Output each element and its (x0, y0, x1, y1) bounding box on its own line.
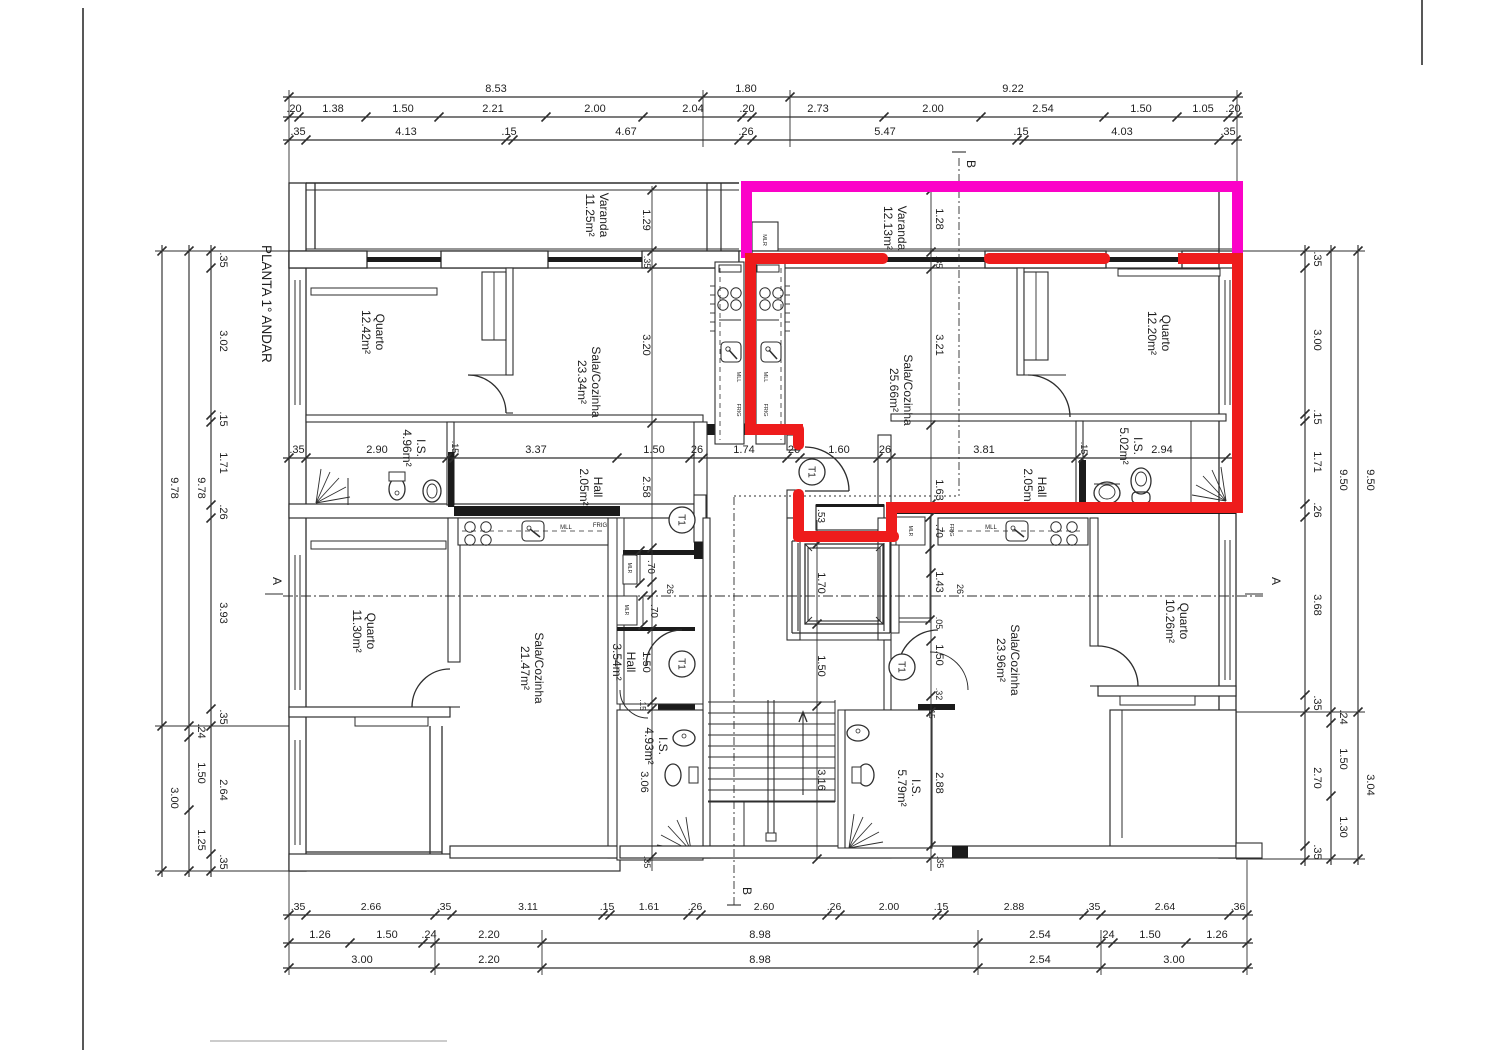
svg-text:1.50: 1.50 (933, 644, 945, 665)
svg-text:2.00: 2.00 (879, 901, 900, 913)
svg-text:1.26: 1.26 (309, 929, 330, 941)
svg-text:.26: .26 (827, 901, 842, 913)
svg-text:2.70: 2.70 (1311, 767, 1323, 788)
svg-text:.35: .35 (934, 256, 944, 269)
svg-text:.35: .35 (291, 901, 306, 913)
svg-text:5.79m²: 5.79m² (895, 769, 909, 806)
svg-text:.35: .35 (1220, 126, 1235, 138)
svg-text:.35: .35 (217, 252, 229, 267)
svg-text:.15: .15 (1311, 409, 1323, 424)
svg-text:.70: .70 (645, 560, 656, 574)
svg-text:1.25: 1.25 (195, 829, 207, 850)
svg-text:Quarto: Quarto (364, 613, 378, 650)
svg-text:Quarto: Quarto (373, 314, 387, 351)
svg-text:A: A (270, 577, 284, 585)
svg-text:Sala/Cozinha: Sala/Cozinha (901, 354, 915, 426)
svg-text:Hall: Hall (1035, 477, 1049, 498)
svg-text:1.50: 1.50 (643, 444, 664, 456)
svg-text:I.S.: I.S. (1131, 437, 1145, 455)
svg-text:3.04: 3.04 (1364, 774, 1376, 795)
svg-text:9.78: 9.78 (168, 477, 180, 498)
svg-text:9.78: 9.78 (195, 477, 207, 498)
svg-text:2.05m²: 2.05m² (1021, 468, 1035, 505)
svg-text:B: B (964, 160, 978, 168)
svg-text:8.98: 8.98 (749, 929, 770, 941)
svg-text:23.34m²: 23.34m² (575, 360, 589, 404)
svg-text:1.28: 1.28 (933, 208, 945, 229)
svg-text:.35: .35 (642, 856, 652, 869)
svg-text:I.S.: I.S. (909, 779, 923, 797)
svg-text:MLL: MLL (762, 372, 768, 383)
svg-text:.35: .35 (217, 709, 229, 724)
svg-text:.24: .24 (1099, 929, 1114, 941)
svg-text:.35: .35 (1086, 901, 1101, 913)
svg-text:3.02: 3.02 (217, 330, 229, 351)
svg-text:2.00: 2.00 (584, 103, 605, 115)
svg-text:.26: .26 (217, 504, 229, 519)
svg-text:T1: T1 (676, 658, 687, 670)
svg-text:26: 26 (879, 444, 891, 456)
svg-text:.20: .20 (739, 103, 754, 115)
svg-text:4.03: 4.03 (1111, 126, 1132, 138)
svg-text:5.47: 5.47 (874, 126, 895, 138)
svg-text:12.20m²: 12.20m² (1145, 311, 1159, 355)
svg-text:MLR: MLR (907, 526, 913, 537)
svg-text:2.00: 2.00 (922, 103, 943, 115)
svg-text:4.96m²: 4.96m² (400, 429, 414, 466)
svg-text:T1: T1 (676, 514, 687, 526)
svg-text:.24: .24 (421, 929, 436, 941)
svg-text:3.93: 3.93 (217, 602, 229, 623)
svg-text:4.67: 4.67 (615, 126, 636, 138)
svg-text:12.13m²: 12.13m² (881, 206, 895, 250)
svg-text:1.05: 1.05 (1192, 103, 1213, 115)
svg-text:Sala/Cozinha: Sala/Cozinha (1008, 624, 1022, 696)
svg-text:2.64: 2.64 (1155, 901, 1176, 913)
svg-text:21.47m²: 21.47m² (518, 646, 532, 690)
svg-text:1.30: 1.30 (1337, 816, 1349, 837)
svg-text:3.06: 3.06 (638, 771, 650, 792)
svg-text:1.61: 1.61 (639, 901, 660, 913)
svg-text:12.42m²: 12.42m² (359, 310, 373, 354)
svg-text:2.90: 2.90 (366, 444, 387, 456)
svg-text:Hall: Hall (591, 477, 605, 498)
svg-text:.35: .35 (1311, 695, 1323, 710)
svg-text:2.73: 2.73 (807, 103, 828, 115)
svg-text:3.00: 3.00 (1163, 954, 1184, 966)
svg-text:.26: .26 (1311, 502, 1323, 517)
svg-text:3.68: 3.68 (1311, 594, 1323, 615)
svg-text:5.02m²: 5.02m² (1117, 427, 1131, 464)
svg-text:.15: .15 (1013, 126, 1028, 138)
svg-text:MLL: MLL (985, 525, 997, 531)
svg-text:26: 26 (665, 584, 675, 594)
svg-text:1.71: 1.71 (1311, 451, 1323, 472)
svg-text:4.13: 4.13 (395, 126, 416, 138)
svg-text:11.30m²: 11.30m² (350, 609, 364, 652)
svg-text:2.05m²: 2.05m² (577, 468, 591, 505)
svg-text:.15: .15 (501, 126, 516, 138)
svg-text:1.43: 1.43 (933, 571, 945, 592)
svg-text:1.50: 1.50 (1337, 748, 1349, 769)
svg-text:1.50: 1.50 (1130, 103, 1151, 115)
svg-text:9.22: 9.22 (1002, 83, 1023, 95)
svg-text:.35: .35 (1311, 251, 1323, 266)
svg-text:Quarto: Quarto (1177, 603, 1191, 640)
svg-text:2.94: 2.94 (1151, 444, 1172, 456)
svg-text:1.38: 1.38 (322, 103, 343, 115)
svg-text:3.20: 3.20 (640, 334, 652, 355)
svg-text:1.71: 1.71 (217, 452, 229, 473)
svg-text:10.26m²: 10.26m² (1163, 599, 1177, 643)
svg-text:8.53: 8.53 (485, 83, 506, 95)
svg-text:1.70: 1.70 (815, 572, 827, 593)
svg-text:1.74: 1.74 (733, 444, 754, 456)
svg-text:26: 26 (691, 444, 703, 456)
svg-text:3.16: 3.16 (815, 769, 827, 790)
svg-text:8.98: 8.98 (749, 954, 770, 966)
svg-text:1.50: 1.50 (815, 655, 827, 676)
svg-text:1.80: 1.80 (735, 83, 756, 95)
svg-text:2.64: 2.64 (217, 779, 229, 800)
svg-text:.15: .15 (600, 901, 615, 913)
svg-text:.32: .32 (934, 688, 944, 701)
svg-text:.35: .35 (289, 444, 304, 456)
svg-text:2.66: 2.66 (361, 901, 382, 913)
svg-text:.15: .15 (934, 901, 949, 913)
svg-text:23.96m²: 23.96m² (994, 638, 1008, 682)
svg-text:T1: T1 (806, 466, 817, 478)
svg-text:PLANTA 1° ANDAR: PLANTA 1° ANDAR (259, 245, 274, 363)
svg-text:.35: .35 (290, 126, 305, 138)
svg-text:11.25m²: 11.25m² (583, 193, 597, 236)
svg-text:.70: .70 (933, 524, 944, 538)
svg-text:.15: .15 (927, 707, 936, 719)
svg-text:2.54: 2.54 (1032, 103, 1053, 115)
svg-text:2.58: 2.58 (640, 476, 652, 497)
svg-text:.20: .20 (1225, 103, 1240, 115)
svg-text:MLL: MLL (560, 525, 572, 531)
svg-text:1.50: 1.50 (195, 762, 207, 783)
svg-text:I.S.: I.S. (414, 439, 428, 457)
svg-text:MLR: MLR (623, 605, 629, 616)
svg-text:Varanda: Varanda (597, 193, 611, 238)
svg-text:FRIG: FRIG (762, 403, 768, 416)
svg-text:.15: .15 (217, 411, 229, 426)
svg-text:.26: .26 (688, 901, 703, 913)
svg-text:MLR: MLR (626, 563, 632, 574)
svg-text:Varanda: Varanda (895, 206, 909, 251)
svg-text:2.20: 2.20 (478, 929, 499, 941)
svg-text:MLL: MLL (735, 372, 741, 383)
svg-text:Hall: Hall (624, 652, 638, 673)
svg-text:9.50: 9.50 (1337, 469, 1349, 490)
svg-text:.70: .70 (648, 604, 659, 618)
svg-text:2.88: 2.88 (1004, 901, 1025, 913)
svg-text:1.50: 1.50 (1139, 929, 1160, 941)
svg-text:MLR: MLR (761, 234, 767, 246)
svg-text:3.11: 3.11 (518, 901, 538, 913)
svg-text:FRIG: FRIG (593, 523, 608, 529)
svg-text:.36: .36 (1231, 901, 1246, 913)
svg-text:I.S.: I.S. (656, 737, 670, 755)
svg-text:.35: .35 (1311, 844, 1323, 859)
svg-text:2.88: 2.88 (933, 772, 945, 793)
svg-text:.35: .35 (935, 856, 945, 869)
svg-text:.05: .05 (934, 617, 944, 630)
svg-text:2.54: 2.54 (1029, 954, 1050, 966)
svg-text:1.50: 1.50 (376, 929, 397, 941)
svg-text:2.60: 2.60 (754, 901, 775, 913)
svg-text:4.93m²: 4.93m² (642, 727, 656, 764)
svg-text:Quarto: Quarto (1159, 315, 1173, 352)
svg-text:Sala/Cozinha: Sala/Cozinha (589, 346, 603, 418)
svg-text:3.81: 3.81 (973, 444, 994, 456)
svg-text:B: B (740, 887, 754, 895)
svg-text:25.66m²: 25.66m² (887, 368, 901, 412)
svg-text:3.54m²: 3.54m² (610, 643, 624, 680)
svg-text:.15: .15 (450, 441, 460, 454)
svg-text:3.00: 3.00 (1311, 329, 1323, 350)
svg-text:3.00: 3.00 (168, 787, 180, 808)
svg-text:.15: .15 (1079, 442, 1089, 455)
svg-text:3.00: 3.00 (351, 954, 372, 966)
svg-text:1.29: 1.29 (640, 209, 652, 230)
svg-text:2.20: 2.20 (478, 954, 499, 966)
svg-text:FRIG: FRIG (735, 403, 741, 416)
svg-text:2.21: 2.21 (482, 103, 503, 115)
svg-text:.15: .15 (638, 699, 647, 711)
svg-text:9.50: 9.50 (1364, 469, 1376, 490)
svg-text:A: A (1269, 577, 1283, 585)
svg-text:.35: .35 (642, 256, 652, 269)
svg-text:.26: .26 (738, 126, 753, 138)
svg-text:26: 26 (955, 584, 965, 594)
svg-text:T1: T1 (896, 661, 907, 673)
svg-text:1.63: 1.63 (933, 479, 945, 500)
svg-text:1.26: 1.26 (1206, 929, 1227, 941)
svg-text:Sala/Cozinha: Sala/Cozinha (532, 632, 546, 704)
svg-text:.35: .35 (437, 901, 452, 913)
svg-text:1.50: 1.50 (640, 651, 652, 672)
svg-text:2.04: 2.04 (682, 103, 703, 115)
svg-text:.35: .35 (217, 854, 229, 869)
svg-text:3.21: 3.21 (933, 334, 945, 355)
svg-text:FRIG: FRIG (948, 523, 954, 536)
svg-text:1.60: 1.60 (828, 444, 849, 456)
svg-text:3.37: 3.37 (525, 444, 546, 456)
svg-text:2.54: 2.54 (1029, 929, 1050, 941)
svg-text:1.50: 1.50 (392, 103, 413, 115)
svg-text:.53: .53 (815, 509, 826, 523)
